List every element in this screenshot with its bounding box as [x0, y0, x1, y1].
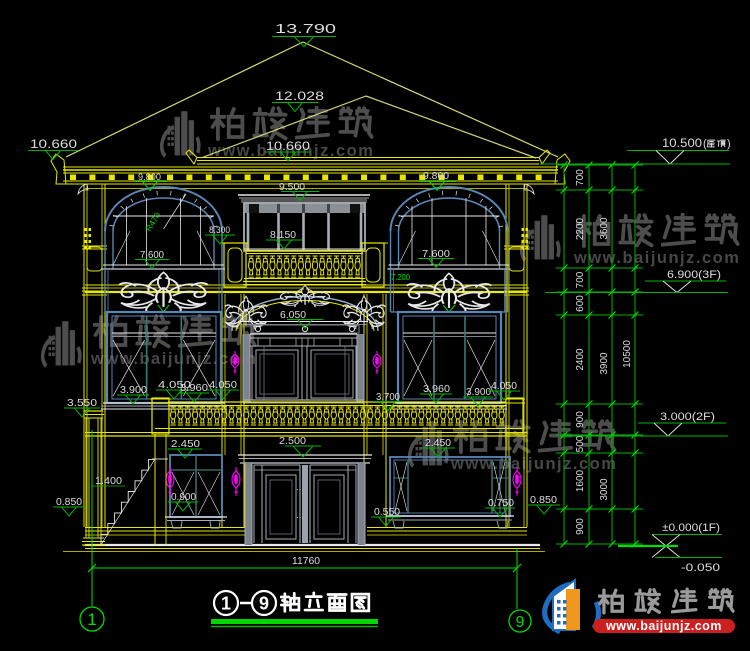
svg-text:7.200: 7.200	[391, 273, 411, 282]
svg-text:3.900: 3.900	[466, 387, 491, 398]
svg-text:2400: 2400	[575, 348, 586, 371]
svg-text:8.300: 8.300	[209, 225, 230, 236]
svg-text:3.000(2F): 3.000(2F)	[660, 411, 715, 423]
svg-text:9: 9	[259, 594, 269, 614]
svg-text:3000: 3000	[599, 478, 610, 501]
svg-text:www.baijunjz.com: www.baijunjz.com	[605, 619, 722, 633]
svg-text:700: 700	[575, 169, 586, 186]
svg-text:11760: 11760	[292, 555, 320, 567]
svg-text:700: 700	[575, 271, 586, 288]
svg-text:6.900(3F): 6.900(3F)	[667, 269, 721, 281]
svg-text:13.790: 13.790	[275, 22, 336, 36]
svg-text:3.900: 3.900	[120, 385, 147, 396]
svg-text:3.960: 3.960	[423, 384, 450, 395]
svg-text:0.850: 0.850	[56, 497, 82, 508]
svg-text:(: (	[703, 138, 707, 150]
svg-text:1: 1	[221, 594, 231, 614]
svg-text:2.450: 2.450	[425, 438, 451, 449]
svg-text:4.050: 4.050	[491, 380, 517, 392]
svg-text:2.500: 2.500	[279, 436, 306, 447]
svg-text:1: 1	[87, 610, 96, 629]
svg-text:0.750: 0.750	[488, 498, 514, 509]
svg-text:): )	[727, 138, 731, 150]
svg-text:3600: 3600	[599, 217, 610, 240]
svg-text:0.900: 0.900	[171, 492, 196, 503]
svg-text:2200: 2200	[575, 217, 586, 240]
svg-text:2.450: 2.450	[171, 439, 201, 450]
svg-text:12.028: 12.028	[275, 89, 324, 103]
svg-text:··: ··	[296, 513, 301, 522]
svg-text:3.960: 3.960	[180, 383, 208, 394]
svg-text:1.400: 1.400	[95, 476, 122, 487]
svg-text:0.850: 0.850	[530, 495, 557, 506]
svg-text:500: 500	[575, 435, 586, 452]
svg-text:-0.050: -0.050	[681, 562, 720, 574]
svg-text:9.800: 9.800	[423, 171, 449, 182]
svg-text:www.baijunjz.com: www.baijunjz.com	[573, 249, 740, 267]
svg-text:10500: 10500	[622, 340, 633, 368]
svg-text:±0.000(1F): ±0.000(1F)	[662, 522, 720, 534]
svg-text:10.660: 10.660	[266, 141, 310, 153]
svg-text:··: ··	[296, 485, 301, 494]
svg-text:9: 9	[516, 614, 525, 631]
svg-text:10.660: 10.660	[30, 137, 77, 151]
svg-text:10.500: 10.500	[662, 138, 702, 150]
svg-text:3.550: 3.550	[67, 397, 97, 409]
svg-text:0.550: 0.550	[374, 507, 400, 518]
svg-text:900: 900	[575, 411, 586, 428]
svg-text:600: 600	[575, 295, 586, 312]
svg-text:3900: 3900	[599, 352, 610, 375]
svg-text:900: 900	[575, 518, 586, 535]
svg-text:1600: 1600	[575, 469, 586, 492]
svg-text:4.050: 4.050	[209, 380, 237, 391]
svg-text:8.150: 8.150	[270, 230, 296, 241]
